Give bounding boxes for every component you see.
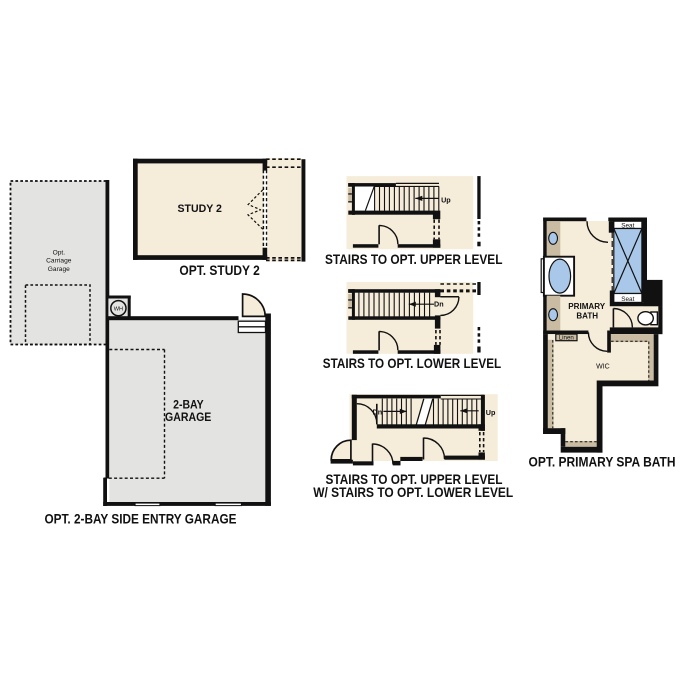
svg-text:OPT. STUDY 2: OPT. STUDY 2 [179,262,260,278]
svg-text:WIC: WIC [596,364,610,371]
svg-text:2-BAY: 2-BAY [173,400,204,412]
svg-text:Dn: Dn [434,300,444,309]
svg-text:Seat: Seat [621,296,634,303]
svg-text:Up: Up [441,195,451,204]
svg-text:PRIMARY: PRIMARY [568,302,606,311]
svg-text:STAIRS TO OPT. UPPER LEVEL: STAIRS TO OPT. UPPER LEVEL [325,251,503,267]
svg-text:Carriage: Carriage [46,258,72,265]
svg-text:Linen: Linen [559,335,575,342]
svg-text:OPT. PRIMARY SPA BATH: OPT. PRIMARY SPA BATH [529,454,676,470]
svg-text:BATH: BATH [576,312,598,321]
svg-text:STAIRS TO OPT. LOWER LEVEL: STAIRS TO OPT. LOWER LEVEL [323,355,502,371]
svg-text:Up: Up [486,408,496,417]
svg-text:Dn: Dn [373,407,383,416]
svg-text:OPT. 2-BAY SIDE ENTRY GARAGE: OPT. 2-BAY SIDE ENTRY GARAGE [45,511,237,527]
svg-text:STUDY 2: STUDY 2 [178,203,222,215]
svg-text:GARAGE: GARAGE [165,412,212,424]
svg-text:Opt.: Opt. [53,249,66,256]
svg-text:W/ STAIRS TO OPT. LOWER LEVEL: W/ STAIRS TO OPT. LOWER LEVEL [313,484,513,500]
svg-text:Garage: Garage [48,266,70,273]
svg-text:WH: WH [114,307,123,313]
